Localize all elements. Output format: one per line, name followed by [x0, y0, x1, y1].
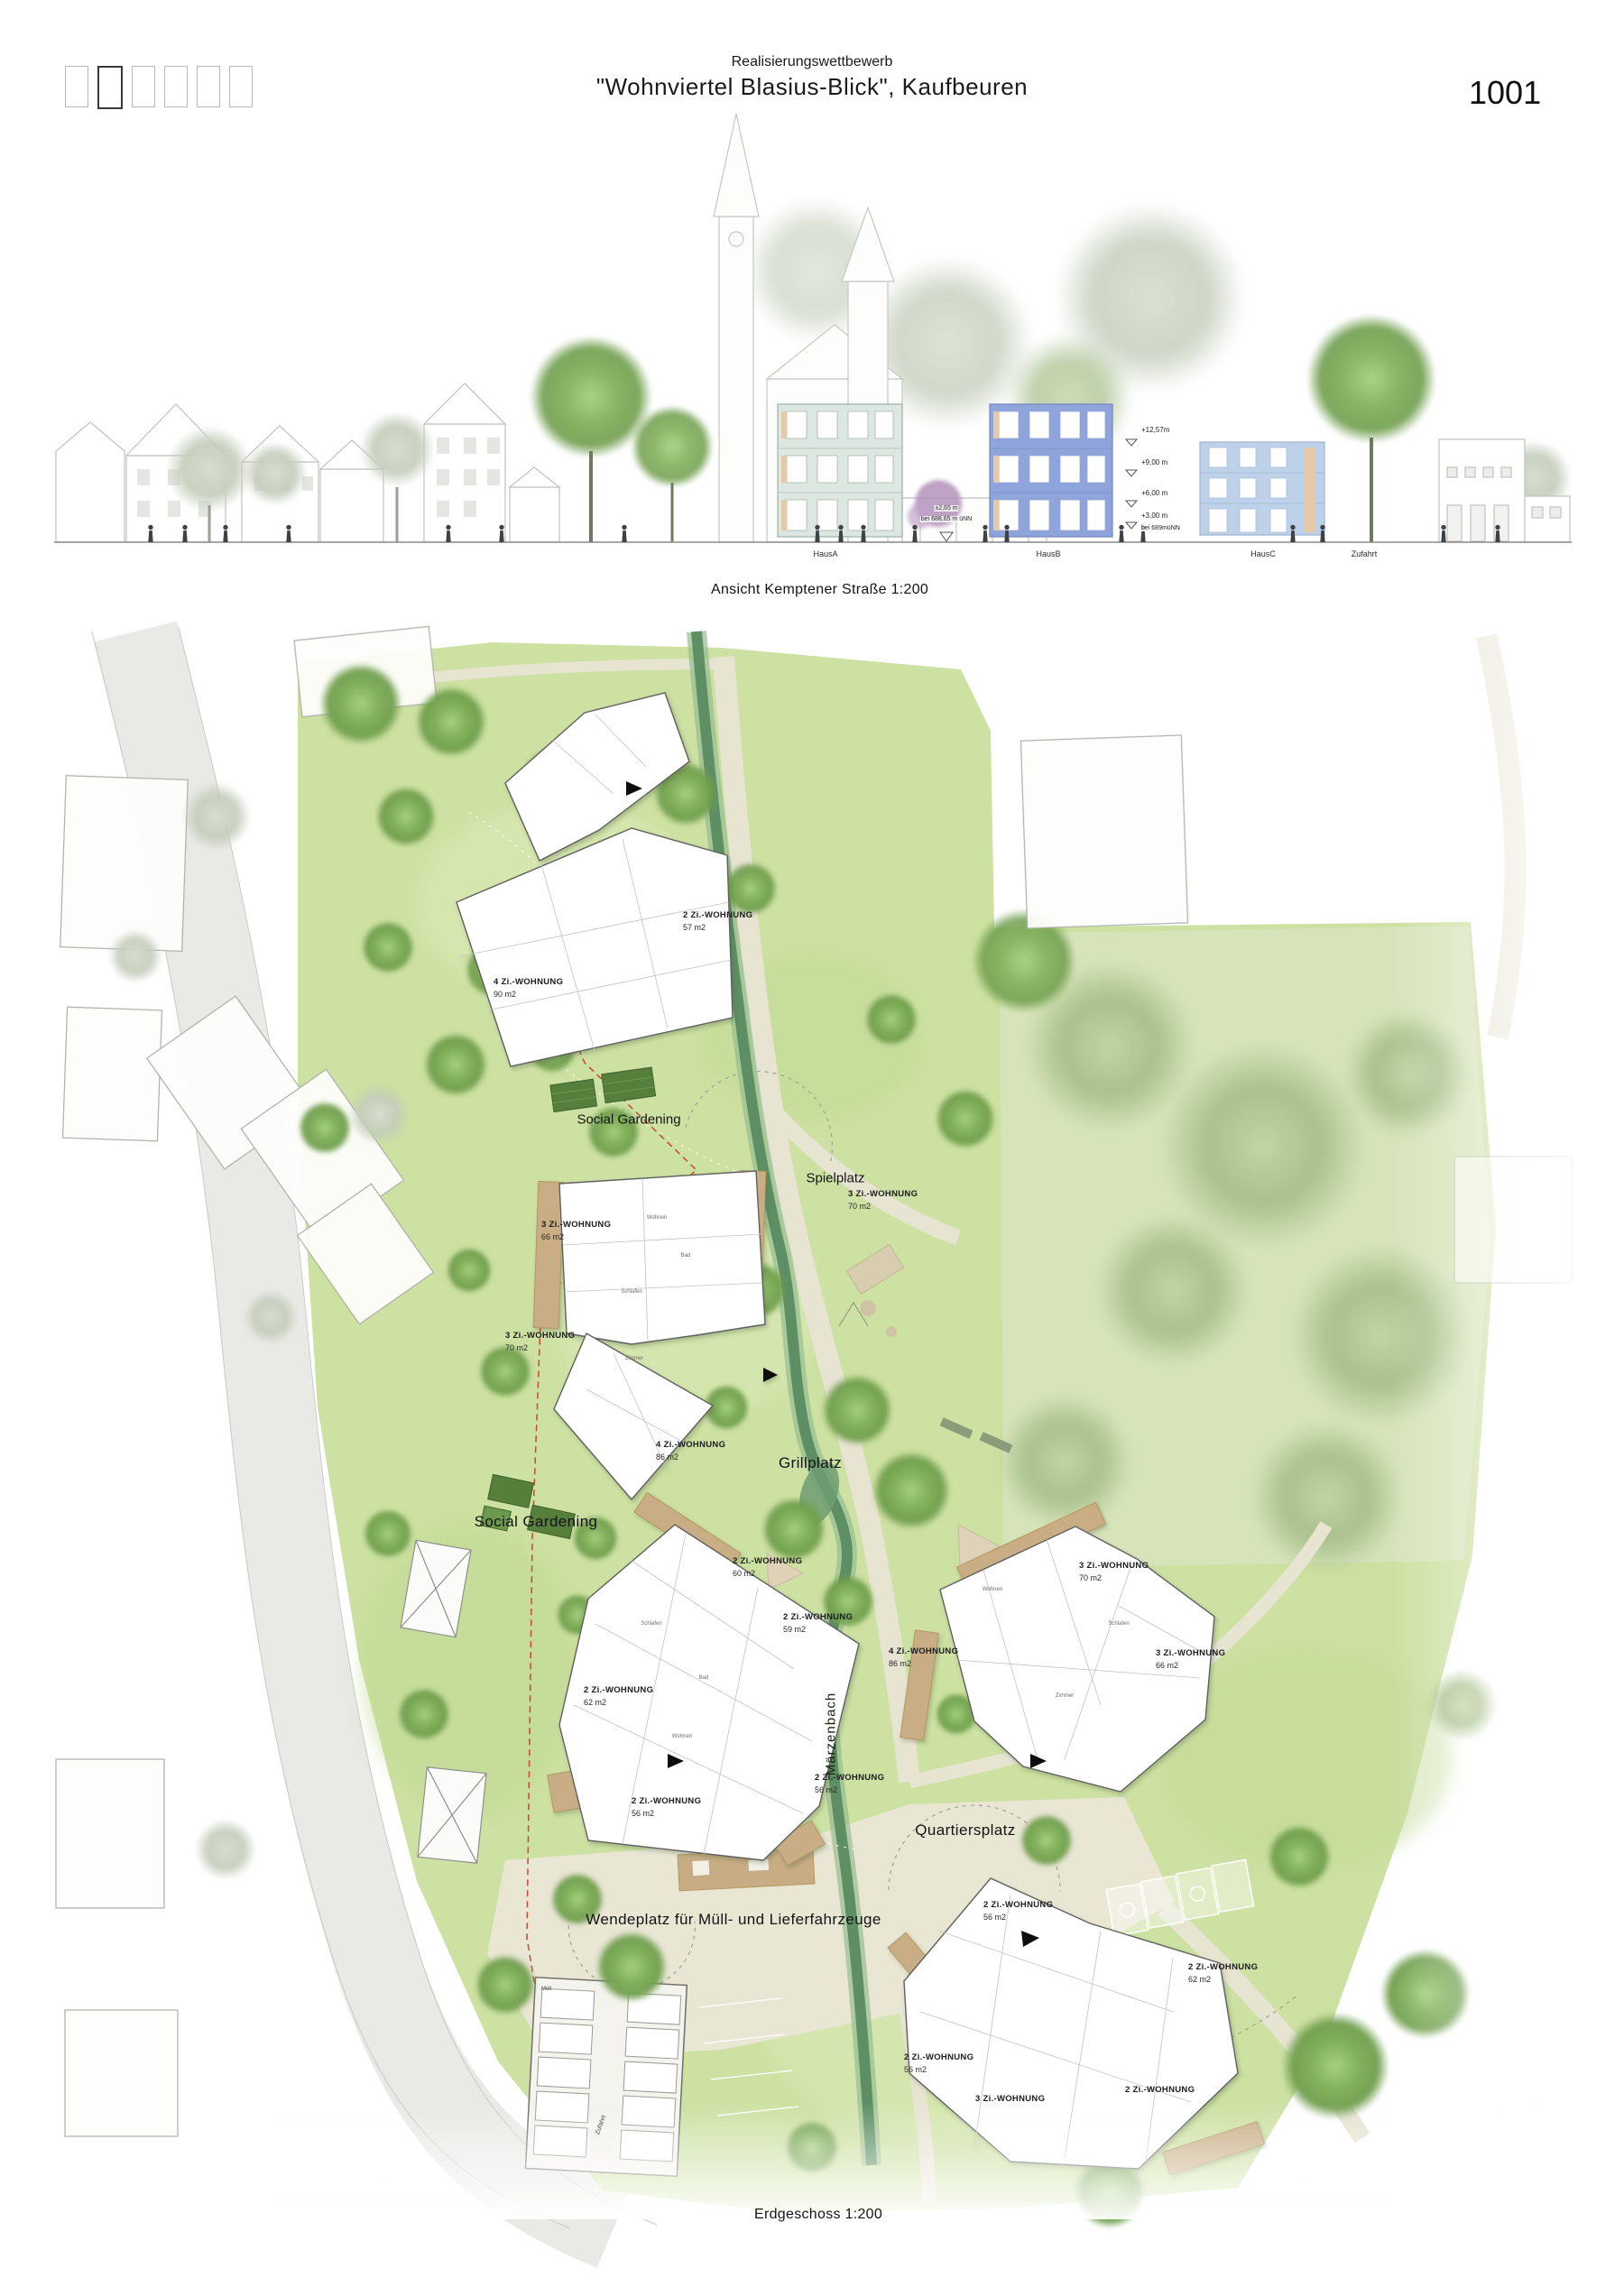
apartment-label: 2 Zi.-WOHNUNG60 m2 [733, 1555, 802, 1580]
height-note-line2: bei 688,65 m üNN [920, 516, 973, 522]
elevation-haus-c [1200, 442, 1324, 535]
apartment-label: 2 Zi.-WOHNUNG [1125, 2084, 1195, 2097]
label-social-gardening-south: Social Gardening [475, 1513, 598, 1531]
plan-caption: Erdgeschoss 1:200 [754, 2207, 882, 2223]
apartment-label: 3 Zi.-WOHNUNG70 m2 [848, 1188, 918, 1213]
height-mark: +6,00 m [1140, 489, 1168, 497]
apartment-label: 2 Zi.-WOHNUNG56 m2 [632, 1795, 701, 1820]
elevation-label-haus-a: HausA [813, 549, 837, 558]
height-mark: +12,57m [1140, 426, 1170, 434]
height-mark-datum: bei 689müNN [1140, 525, 1181, 531]
elevation-label-haus-b: HausB [1036, 549, 1060, 558]
room-label: Bad [699, 1675, 709, 1681]
label-muell: Müll [541, 1987, 551, 1992]
room-label: Schlafen [621, 1289, 641, 1295]
room-label: Zimmer [1056, 1693, 1074, 1699]
room-label: Schlafen [641, 1621, 661, 1627]
apartment-label: 4 Zi.-WOHNUNG86 m2 [656, 1439, 725, 1463]
label-grillplatz: Grillplatz [779, 1454, 842, 1472]
label-social-gardening-north: Social Gardening [577, 1112, 680, 1128]
room-label: Zimmer [625, 1356, 643, 1361]
label-wendeplatz: Wendeplatz für Müll- und Lieferfahrzeuge [586, 1911, 881, 1929]
site-plan-drawing [56, 626, 1624, 2260]
apartment-label: 3 Zi.-WOHNUNG70 m2 [1079, 1560, 1149, 1584]
height-mark: +9,00 m [1140, 458, 1168, 466]
room-label: Wohnen [672, 1734, 692, 1739]
board-artwork [0, 0, 1624, 2296]
room-label: Wohnen [647, 1215, 667, 1221]
elevation-caption: Ansicht Kemptener Straße 1:200 [711, 582, 928, 598]
room-label: Wohnen [983, 1587, 1002, 1592]
apartment-label: 2 Zi.-WOHNUNG59 m2 [783, 1611, 853, 1636]
apartment-label: 3 Zi.-WOHNUNG66 m2 [541, 1219, 611, 1243]
elevation-label-zufahrt: Zufahrt [1352, 549, 1378, 558]
label-quartiersplatz: Quartiersplatz [915, 1821, 1015, 1840]
apartment-label: 3 Zi.-WOHNUNG70 m2 [505, 1330, 575, 1354]
apartment-label: 2 Zi.-WOHNUNG56 m2 [904, 2052, 973, 2076]
apartment-label: 2 Zi.-WOHNUNG57 m2 [683, 909, 752, 934]
apartment-label: 4 Zi.-WOHNUNG86 m2 [889, 1646, 958, 1670]
height-mark: +3,00 m [1140, 512, 1168, 520]
elevation-haus-a [778, 404, 902, 537]
elevation-drawing [54, 114, 1572, 542]
label-spielplatz: Spielplatz [806, 1171, 864, 1186]
room-label: Schlafen [1108, 1621, 1129, 1627]
room-label: Bad [681, 1253, 691, 1259]
apartment-label: 2 Zi.-WOHNUNG62 m2 [584, 1684, 653, 1709]
apartment-label: 2 Zi.-WOHNUNG56 m2 [815, 1772, 884, 1796]
elevation-haus-b [990, 404, 1112, 537]
competition-board-page: { "header": { "competition_line": "Reali… [0, 0, 1624, 2296]
elevation-label-haus-c: HausC [1250, 549, 1276, 558]
label-maerzenbach: Märzenbach [824, 1692, 839, 1776]
apartment-label: 3 Zi.-WOHNUNG [975, 2093, 1045, 2106]
apartment-label: 3 Zi.-WOHNUNG66 m2 [1156, 1647, 1225, 1672]
height-note-line1: ±2,65 m [934, 505, 958, 512]
apartment-label: 2 Zi.-WOHNUNG62 m2 [1188, 1961, 1258, 1986]
apartment-label: 2 Zi.-WOHNUNG56 m2 [983, 1899, 1053, 1923]
apartment-label: 4 Zi.-WOHNUNG90 m2 [494, 976, 563, 1000]
